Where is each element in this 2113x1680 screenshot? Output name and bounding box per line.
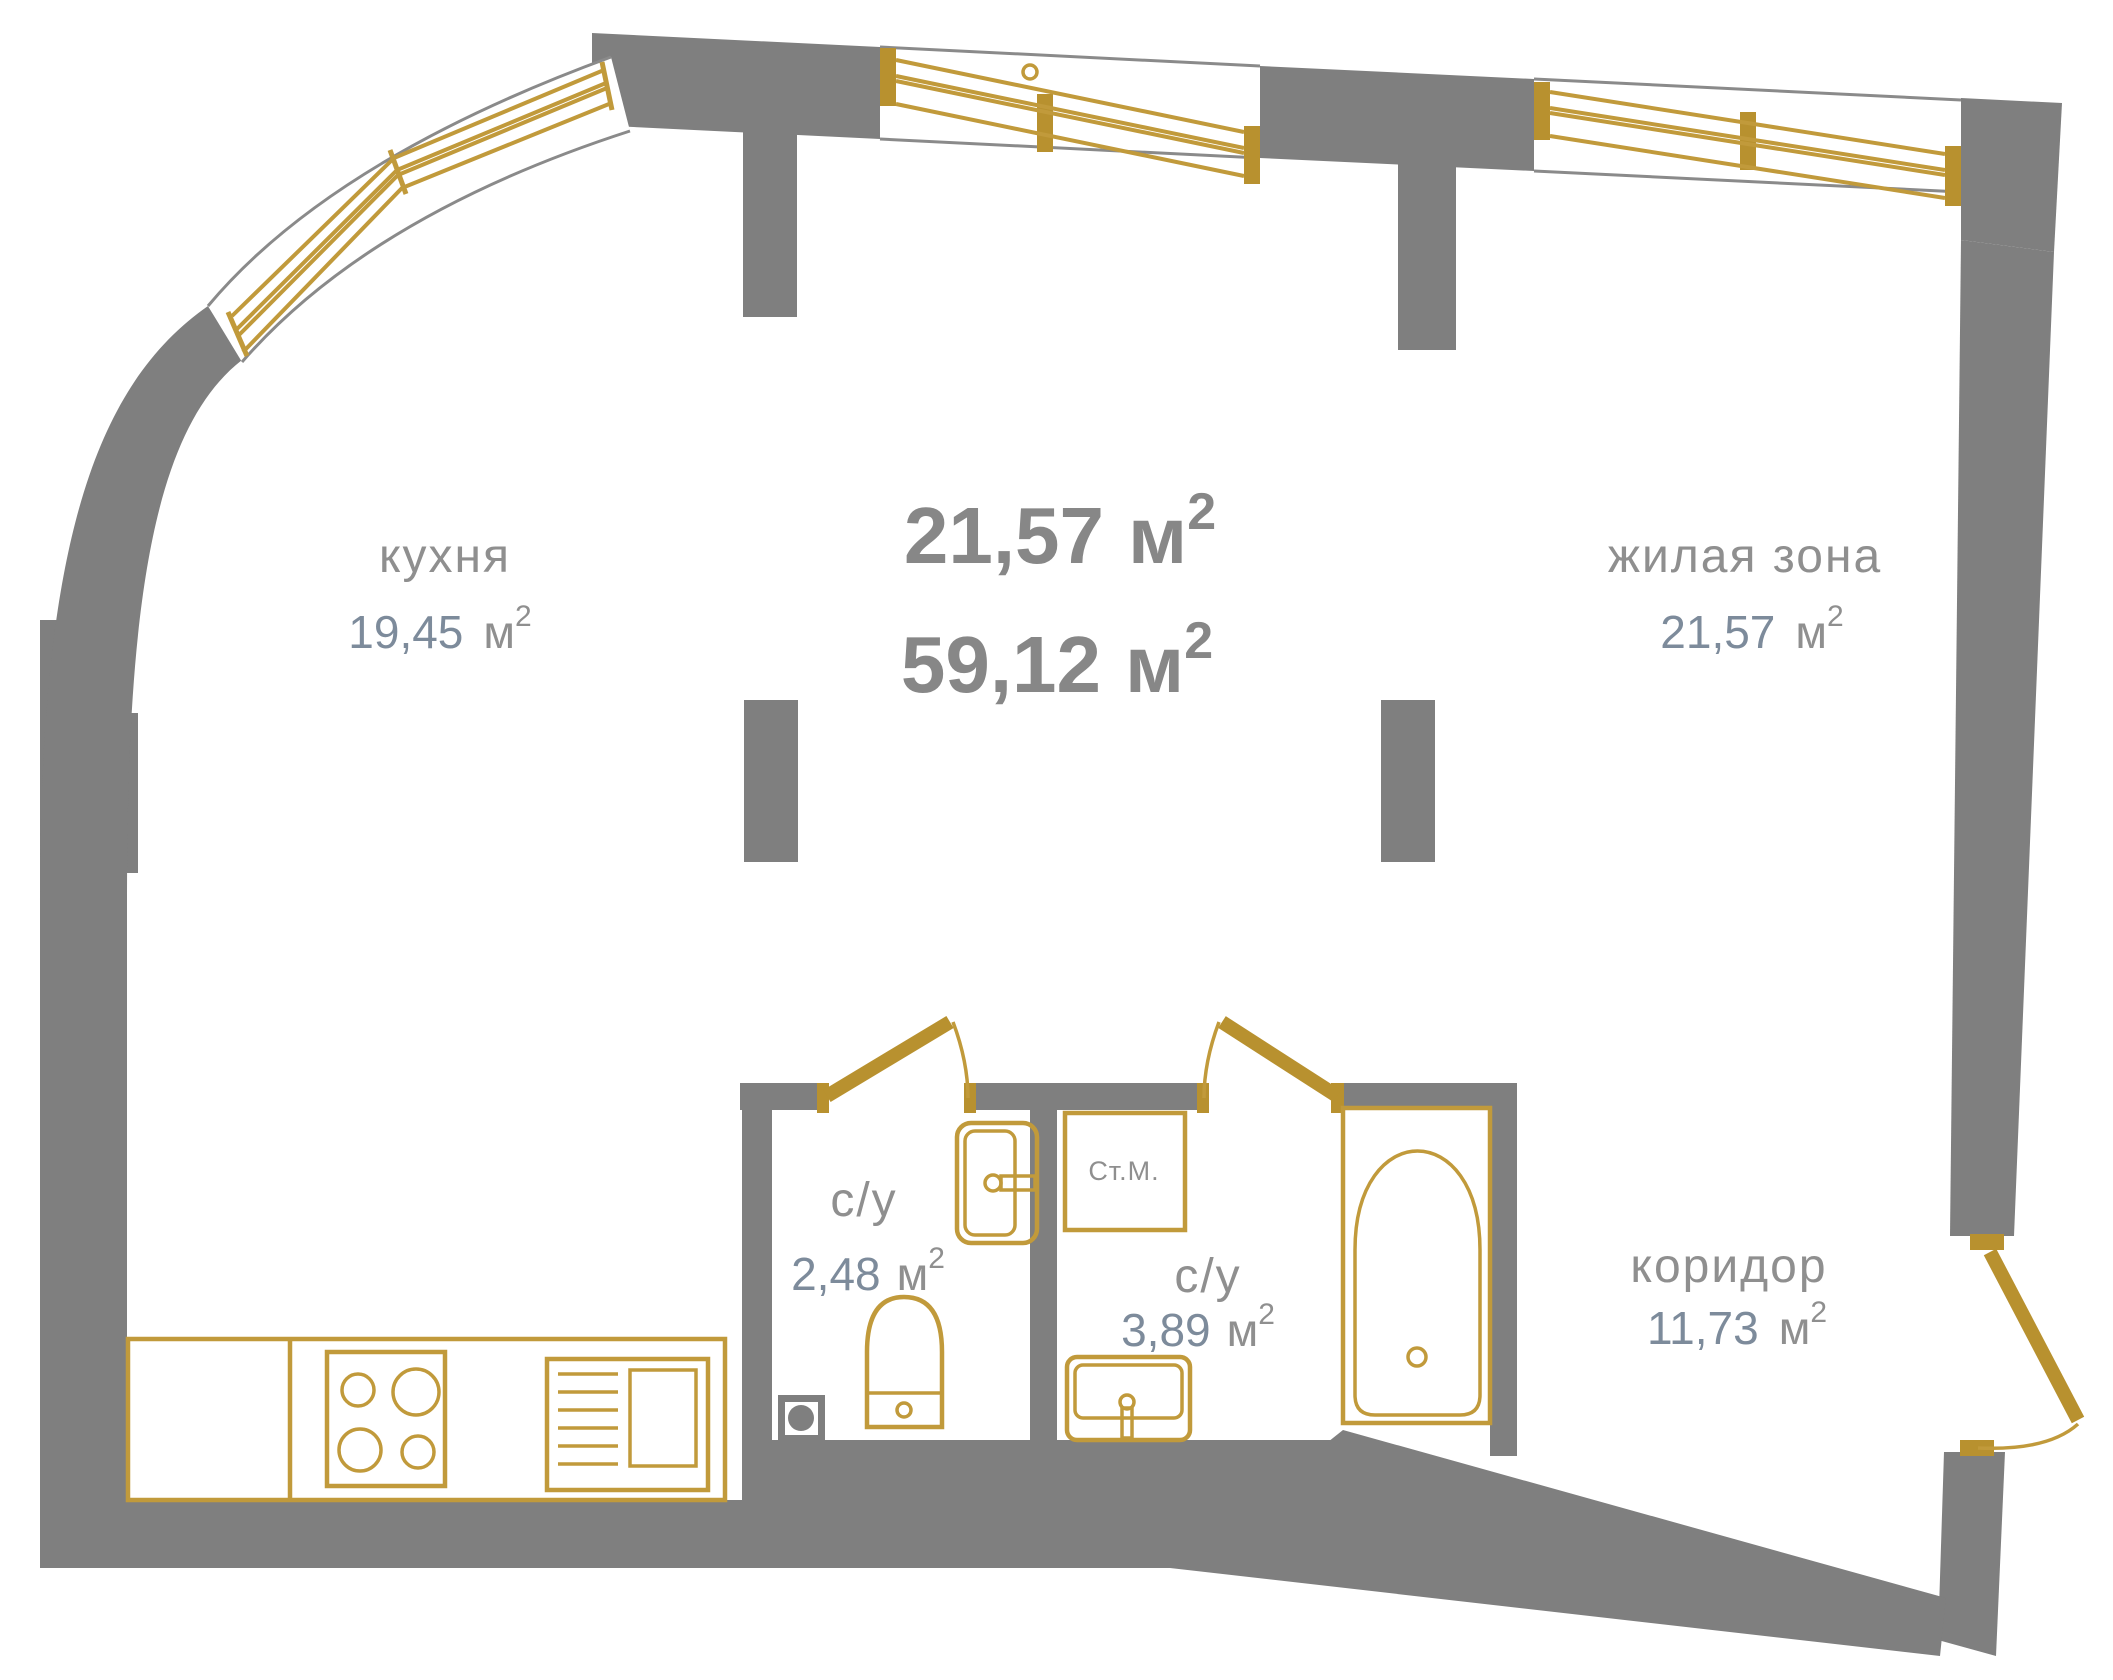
wall-curve xyxy=(40,306,242,900)
kitchen-counter xyxy=(128,1339,725,1500)
door-entrance-jamb-top xyxy=(1970,1234,2004,1250)
door-bath1-jamb-right xyxy=(964,1083,976,1113)
pier-top-left xyxy=(743,125,797,317)
labels: кухня 19,45м2 жилая зона 21,57м2 21,57м2… xyxy=(348,483,1882,1356)
bathtub-inner xyxy=(1355,1151,1480,1415)
kitchen-sink-drainer xyxy=(558,1374,618,1464)
wall-bottom-bathrooms xyxy=(742,1440,1350,1568)
wall-bath-top-b xyxy=(976,1083,1197,1110)
room-label-corridor: коридор xyxy=(1630,1240,1827,1293)
wall-top-b xyxy=(1260,66,1534,171)
door-bath2 xyxy=(1197,1022,1344,1113)
wall-top-a xyxy=(592,33,880,139)
wall-right-lower xyxy=(1938,1452,2005,1656)
wall-right-upper xyxy=(1950,240,2054,1236)
room-area-living: 21,57м2 xyxy=(1660,600,1843,658)
window-2-cap-right xyxy=(1945,146,1961,206)
room-area-bath2: 3,89м2 xyxy=(1121,1298,1275,1356)
wall-top-corner xyxy=(1961,98,2062,252)
total-area-total: 59,12м2 xyxy=(901,612,1213,709)
floor-plan-canvas: кухня 19,45м2 жилая зона 21,57м2 21,57м2… xyxy=(0,0,2113,1680)
pier-mid-left xyxy=(744,700,798,862)
bath1-sink-faucet-bar xyxy=(1001,1176,1035,1190)
window-1-cap-left xyxy=(880,48,896,106)
bath1-sink-basin xyxy=(965,1131,1015,1235)
door-bath2-leaf xyxy=(1222,1022,1337,1096)
room-area-kitchen: 19,45м2 xyxy=(348,600,531,658)
pier-mid-right xyxy=(1381,700,1435,862)
pier-top-right xyxy=(1398,162,1456,350)
room-area-corridor: 11,73м2 xyxy=(1647,1296,1827,1354)
washing-machine-label: Ст.М. xyxy=(1088,1156,1159,1186)
window-1-mullion xyxy=(1037,94,1053,152)
kitchen-sink-outline xyxy=(547,1359,708,1490)
bath2-sink-faucet-bar xyxy=(1122,1408,1132,1438)
window-2-cap-left xyxy=(1534,82,1550,140)
curve-window-line-3 xyxy=(238,175,398,336)
room-area-bath1: 2,48м2 xyxy=(791,1242,945,1300)
window-1-cap-right xyxy=(1244,126,1260,184)
floor-plan-page: кухня 19,45м2 жилая зона 21,57м2 21,57м2… xyxy=(0,0,2113,1680)
window-zones xyxy=(208,47,1961,362)
door-bath1 xyxy=(817,1022,976,1113)
door-bath1-jamb-left xyxy=(817,1083,829,1113)
stove-burner-3 xyxy=(339,1429,381,1471)
kitchen-sink-basin xyxy=(630,1370,696,1466)
room-label-kitchen: кухня xyxy=(379,530,511,583)
room-label-living: жилая зона xyxy=(1608,530,1882,583)
bathtub-drain xyxy=(1408,1348,1426,1366)
total-area-living: 21,57м2 xyxy=(904,483,1216,580)
toilet-outline xyxy=(867,1297,942,1427)
walls xyxy=(40,33,2062,1656)
room-label-bath1: с/у xyxy=(830,1174,897,1227)
wall-bath-top-a xyxy=(740,1083,819,1110)
door-entrance xyxy=(1960,1234,2078,1456)
stove-burner-1 xyxy=(342,1374,374,1406)
kitchen-counter-outline xyxy=(128,1339,725,1500)
drain-box-circle xyxy=(788,1405,814,1431)
bath1-sink-faucet-knob xyxy=(985,1175,1001,1191)
door-entrance-leaf xyxy=(1990,1252,2078,1420)
wall-bath-divider xyxy=(1030,1108,1057,1443)
toilet-flush-button xyxy=(897,1403,911,1417)
bath2-sink-outline xyxy=(1067,1357,1190,1440)
wall-bath1-left xyxy=(742,1108,772,1443)
room-label-bath2: с/у xyxy=(1174,1250,1241,1303)
stove-burner-4 xyxy=(402,1436,434,1468)
bathtub-outline xyxy=(1343,1108,1490,1423)
bath1-sink-outline xyxy=(957,1123,1037,1243)
stove-burner-2 xyxy=(393,1369,439,1415)
door-bath1-leaf xyxy=(827,1022,950,1096)
wall-bath2-right xyxy=(1490,1108,1517,1456)
